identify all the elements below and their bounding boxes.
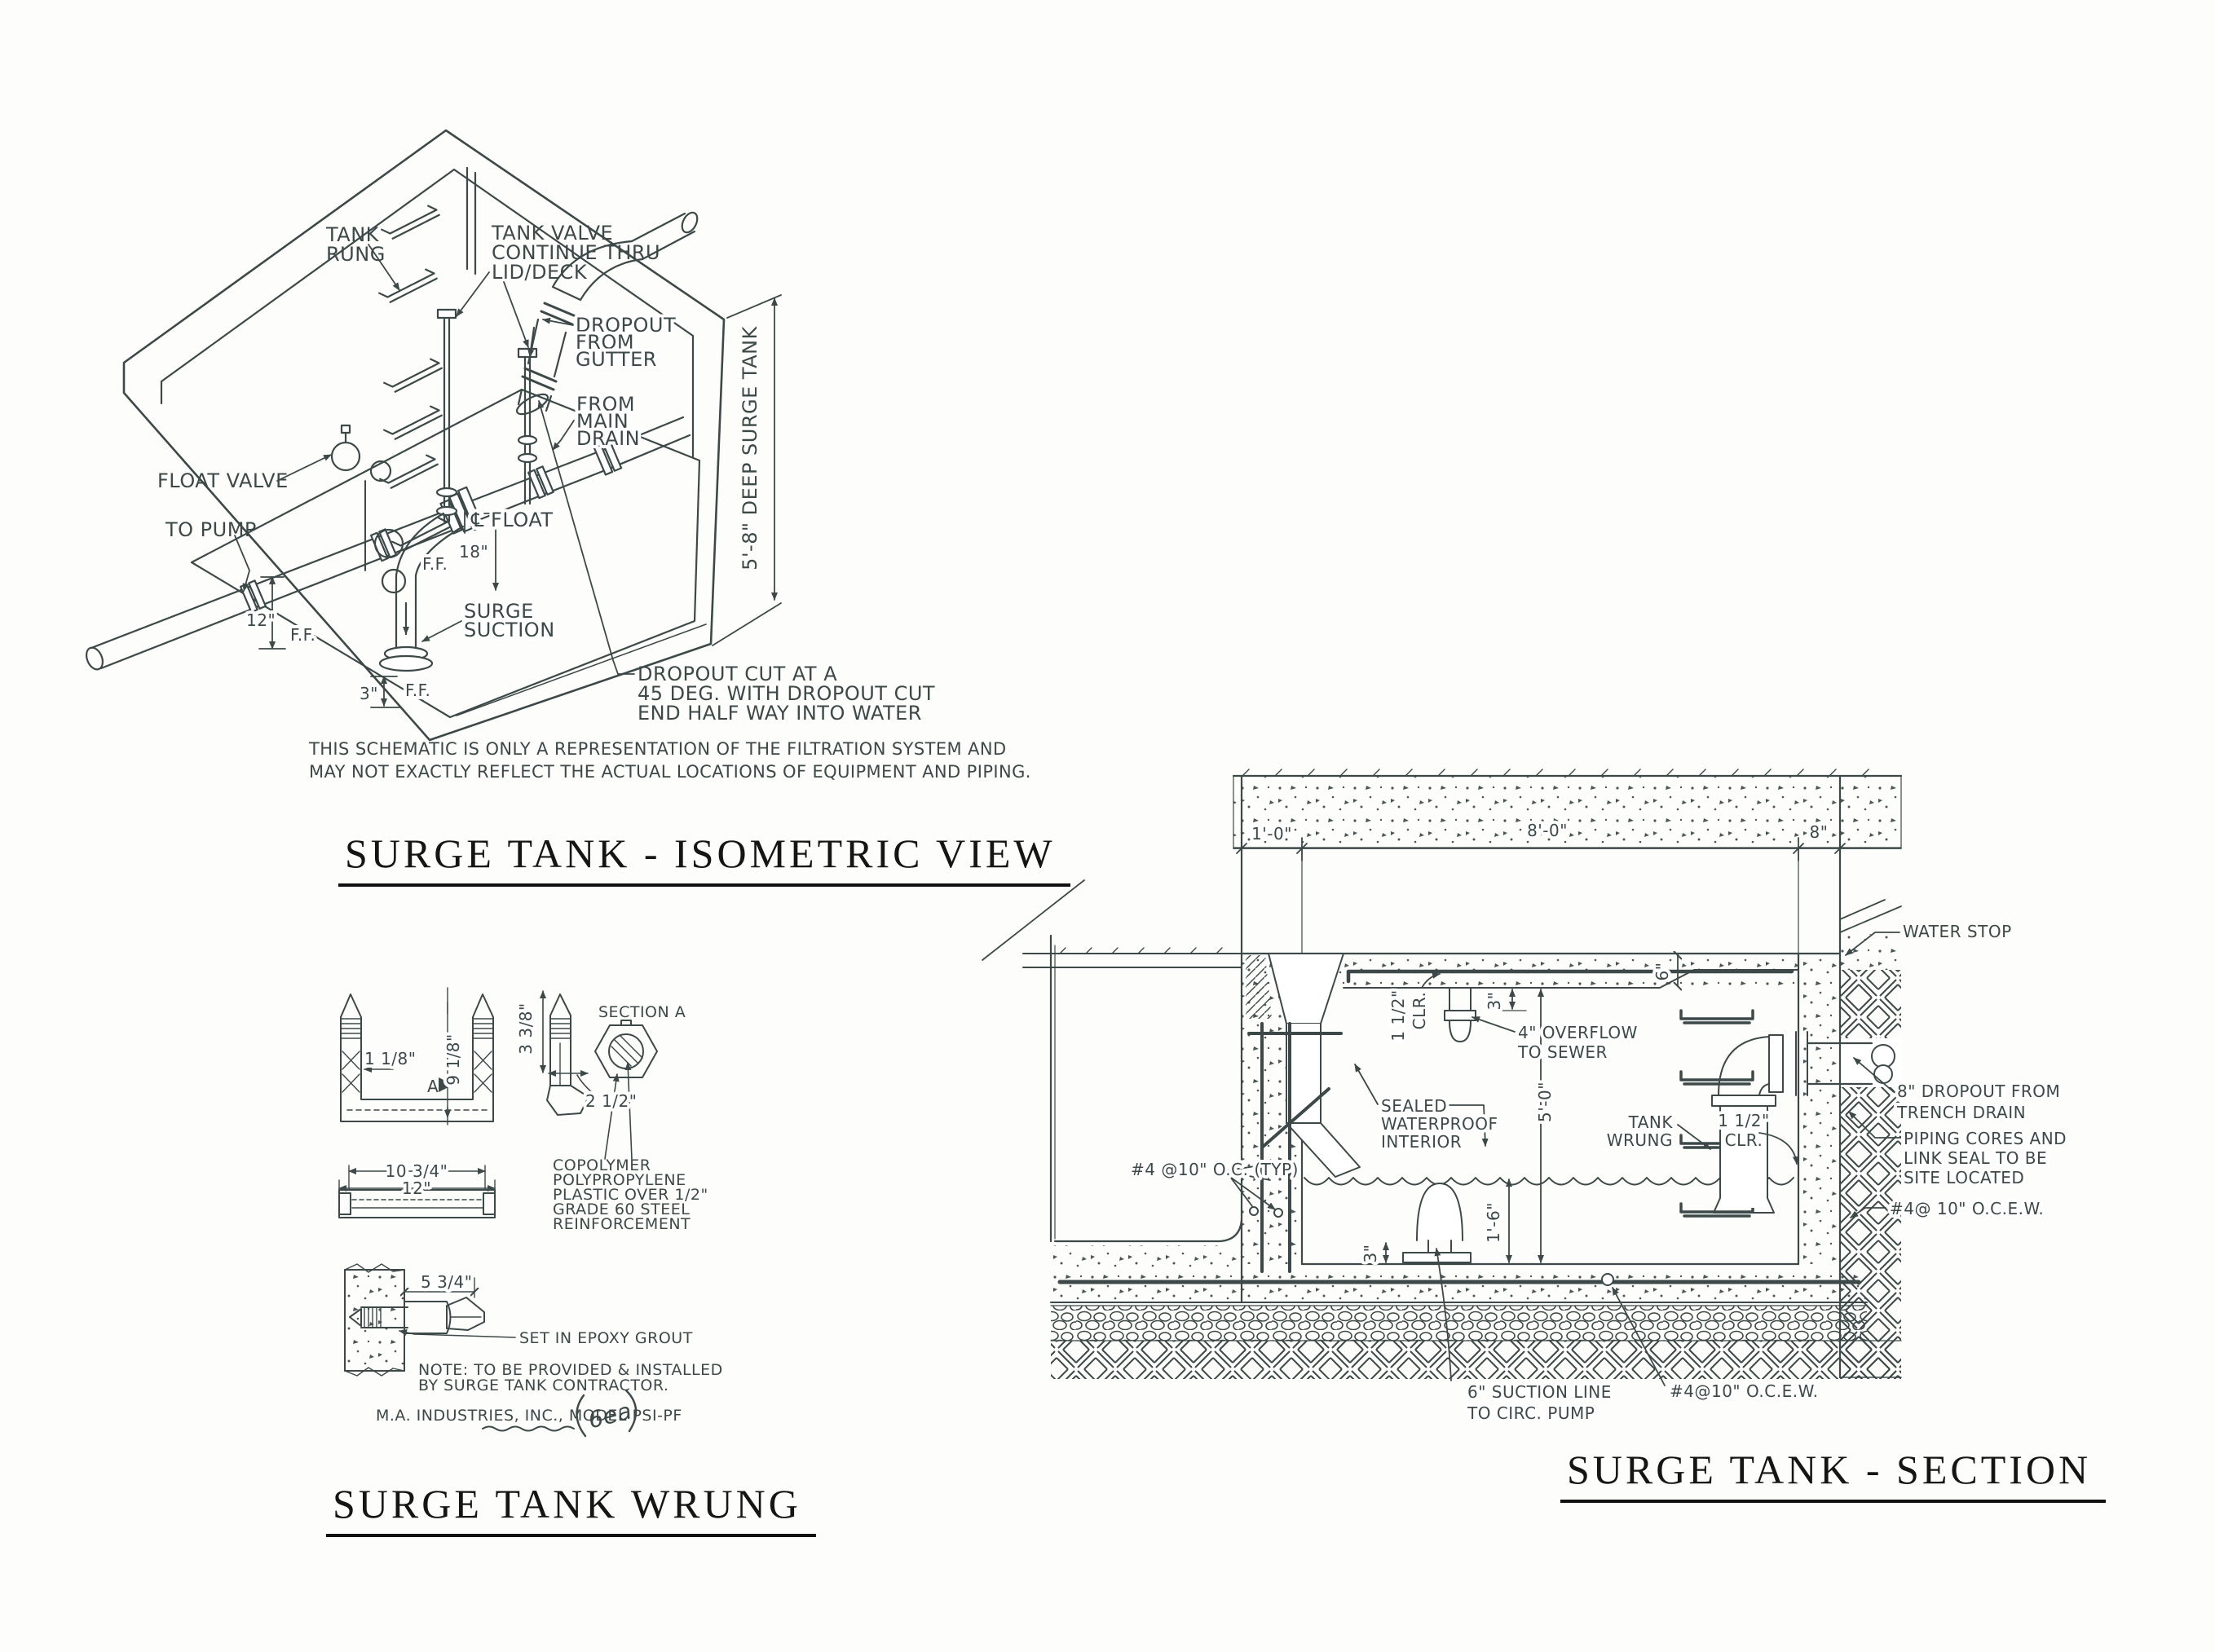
piping-cores-label: PIPING CORES AND: [1904, 1129, 2067, 1148]
dim-5-3-4-label: 5 3/4": [421, 1272, 472, 1292]
section-a-label: SECTION A: [598, 1003, 686, 1021]
dim-8in-label: 8": [1810, 822, 1829, 842]
rung-section-a: [595, 1020, 657, 1159]
tank-wrung-label: TANK: [1628, 1112, 1674, 1132]
dim-3in-floor-label: 3": [1361, 1245, 1380, 1263]
dim-3-3-8-label: 3 3/8": [516, 1002, 536, 1054]
dim-9-1-8-label: 9 1/8": [443, 1033, 463, 1085]
dim-3in-top-label: 3": [1485, 992, 1504, 1011]
from-main-drain-label: DRAIN: [576, 427, 640, 450]
dim-1ft-label: 1'-0": [1251, 824, 1292, 844]
copolymer-note: REINFORCEMENT: [553, 1215, 691, 1233]
section-title: SURGE TANK - SECTION: [1560, 1446, 2106, 1503]
overflow-label: 4" OVERFLOW: [1518, 1023, 1638, 1042]
tank-rung-label: RUNG: [326, 243, 386, 266]
section-overflow-pipe: [1445, 988, 1476, 1042]
wrung-title: SURGE TANK WRUNG: [326, 1480, 816, 1537]
handwritten-quantity: 6ea: [585, 1397, 634, 1434]
iso-main-pipe: [83, 417, 690, 672]
rebar-bottom-label: #4@10" O.C.E.W.: [1670, 1381, 1818, 1401]
suction-line-label: 6" SUCTION LINE: [1467, 1382, 1612, 1402]
rebar-right-label: #4@ 10" O.C.E.W.: [1890, 1199, 2044, 1218]
water-stop-label: WATER STOP: [1903, 922, 2012, 941]
ff-label: F.F.: [422, 554, 448, 574]
trench-dropout-label: TRENCH DRAIN: [1896, 1103, 2026, 1122]
section-view-drawing: 1'-0" 8'-0" 8" WATER STOP 1 1/2" CLR. 3"…: [982, 769, 2067, 1423]
sealed-interior-label: INTERIOR: [1381, 1132, 1462, 1152]
iso-valve-stems: [437, 310, 536, 522]
ff-label: F.F.: [290, 625, 315, 645]
clr-right-label: 1 1/2": [1718, 1111, 1769, 1130]
iso-tank-rungs: [379, 203, 450, 553]
iso-float-valve: [332, 425, 405, 593]
to-pump-label: TO PUMP: [165, 518, 257, 541]
dim-12-label: 12": [246, 610, 276, 630]
clr-top-label: 1 1/2": [1388, 989, 1408, 1041]
ff-label: F.F.: [405, 681, 430, 700]
dim-1ft6-label: 1'-6": [1484, 1202, 1503, 1243]
piping-cores-label: SITE LOCATED: [1904, 1168, 2024, 1187]
dim-1-1-8-label: 1 1/8": [364, 1049, 416, 1068]
dim-18-label: 18": [459, 542, 488, 562]
clr-right-label: CLR.: [1725, 1130, 1763, 1150]
dropout-gutter-label: GUTTER: [576, 348, 657, 371]
deep-surge-tank-label: 5'-8" DEEP SURGE TANK: [739, 325, 761, 570]
cl-float-label: ℄ FLOAT: [470, 509, 554, 531]
dim-5ft-label: 5'-0": [1535, 1082, 1555, 1122]
dim-6in-label: 6": [1652, 963, 1672, 981]
rung-detail-drawing: 1 1/8" 9 1/8" A 3 3/8" SECTION A 2 1/2" …: [339, 988, 723, 1436]
rebar-typ-label: #4 @10" O.C. (TYP): [1131, 1160, 1299, 1179]
sealed-interior-label: SEALED: [1381, 1096, 1447, 1116]
clr-top-label: CLR.: [1410, 992, 1429, 1030]
surge-suction-label: SUCTION: [464, 619, 555, 641]
tank-wrung-label: WRUNG: [1607, 1130, 1673, 1150]
dim-8ft-label: 8'-0": [1527, 821, 1568, 840]
drawing-sheet: TANK RUNG TANK VALVE CONTINUE THRU LID/D…: [0, 0, 2215, 1652]
epoxy-grout-label: SET IN EPOXY GROUT: [519, 1329, 693, 1347]
float-valve-label: FLOAT VALVE: [157, 469, 289, 492]
iso-view-title: SURGE TANK - ISOMETRIC VIEW: [338, 830, 1070, 887]
dim-12-label: 12": [402, 1178, 431, 1198]
isometric-view-drawing: TANK RUNG TANK VALVE CONTINUE THRU LID/D…: [83, 130, 935, 740]
sealed-interior-label: WATERPROOF: [1381, 1114, 1498, 1134]
section-cut-a-label: A: [427, 1077, 439, 1096]
tank-valve-label: LID/DECK: [492, 261, 588, 284]
suction-line-label: TO CIRC. PUMP: [1467, 1403, 1595, 1423]
iso-disclaimer-note: THIS SCHEMATIC IS ONLY A REPRESENTATION …: [309, 738, 1031, 783]
iso-disclaimer-line2: MAY NOT EXACTLY REFLECT THE ACTUAL LOCAT…: [309, 760, 1031, 783]
trench-dropout-label: 8" DROPOUT FROM: [1897, 1082, 2060, 1101]
iso-disclaimer-line1: THIS SCHEMATIC IS ONLY A REPRESENTATION …: [309, 738, 1031, 760]
dim-2-1-2-label: 2 1/2": [585, 1091, 637, 1111]
drawing-sheet-svg: TANK RUNG TANK VALVE CONTINUE THRU LID/D…: [0, 0, 2215, 1652]
contractor-note: BY SURGE TANK CONTRACTOR.: [418, 1377, 668, 1394]
overflow-label: TO SEWER: [1517, 1042, 1608, 1062]
manufacturer-label: M.A. INDUSTRIES, INC., MODEL PSI-PF: [376, 1407, 682, 1425]
piping-cores-label: LINK SEAL TO BE: [1904, 1148, 2047, 1168]
dropout-cut-note: END HALF WAY INTO WATER: [638, 702, 922, 725]
dim-3-label: 3": [360, 684, 378, 703]
